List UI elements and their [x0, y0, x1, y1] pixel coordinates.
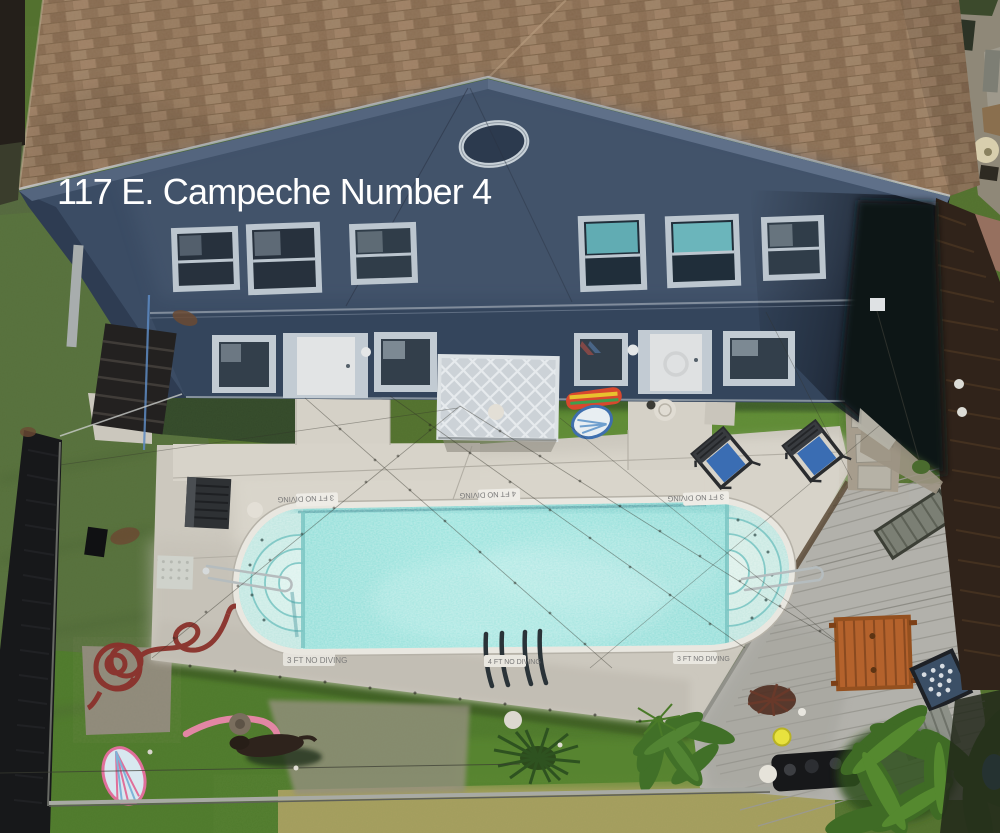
svg-text:3 FT NO DIVING: 3 FT NO DIVING	[287, 656, 347, 665]
svg-text:3 FT NO DIVING: 3 FT NO DIVING	[677, 656, 730, 663]
svg-text:4 FT NO DIVING: 4 FT NO DIVING	[488, 659, 541, 666]
svg-text:117 E. Campeche Number 4: 117 E. Campeche Number 4	[57, 171, 491, 212]
